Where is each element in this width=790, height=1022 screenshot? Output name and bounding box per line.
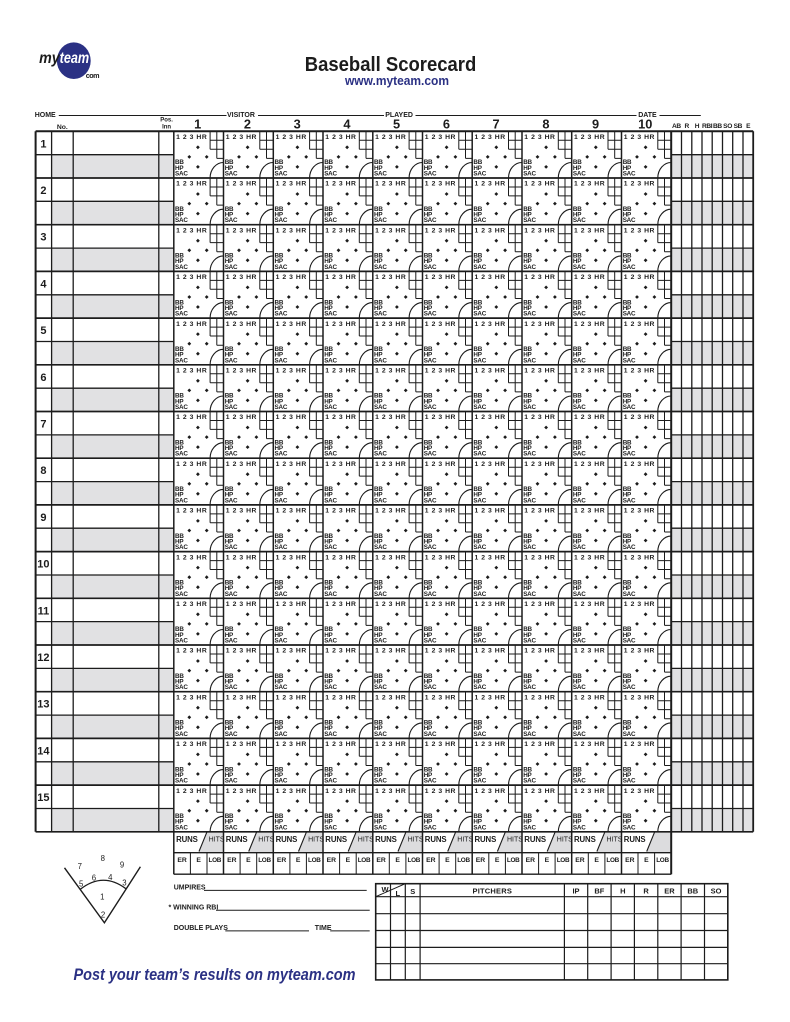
- svg-text:ER: ER: [177, 857, 187, 864]
- svg-text:LOB: LOB: [606, 857, 619, 864]
- svg-text:LOB: LOB: [557, 857, 570, 864]
- svg-text:E: E: [644, 857, 649, 864]
- svg-text:No.: No.: [57, 124, 68, 131]
- svg-text:BB: BB: [713, 123, 722, 130]
- svg-text:E: E: [296, 857, 301, 864]
- svg-text:9: 9: [40, 512, 46, 524]
- svg-text:SO: SO: [711, 887, 722, 896]
- svg-text:R: R: [643, 887, 649, 896]
- svg-text:ER: ER: [664, 887, 675, 896]
- svg-text:3: 3: [40, 232, 46, 244]
- svg-text:3: 3: [122, 879, 126, 888]
- svg-text:BF: BF: [594, 887, 604, 896]
- svg-text:8: 8: [542, 117, 549, 132]
- svg-text:5: 5: [79, 879, 84, 888]
- svg-text:2: 2: [244, 117, 251, 132]
- svg-text:HITS: HITS: [607, 836, 623, 843]
- svg-text:L: L: [396, 889, 401, 898]
- svg-text:1: 1: [100, 893, 104, 902]
- svg-text:RUNS: RUNS: [176, 835, 198, 844]
- svg-text:RUNS: RUNS: [624, 835, 646, 844]
- svg-text:H: H: [695, 123, 700, 130]
- svg-text:7: 7: [493, 117, 500, 132]
- svg-text:RUNS: RUNS: [475, 835, 497, 844]
- svg-text:ER: ER: [426, 857, 436, 864]
- svg-text:2: 2: [40, 185, 46, 197]
- svg-text:LOB: LOB: [308, 857, 321, 864]
- svg-text:R: R: [684, 123, 689, 130]
- svg-text:9: 9: [120, 860, 124, 869]
- svg-text:10: 10: [638, 117, 652, 132]
- svg-text:HITS: HITS: [308, 836, 324, 843]
- svg-text:BB: BB: [687, 887, 698, 896]
- svg-text:RUNS: RUNS: [574, 835, 596, 844]
- svg-text:4: 4: [40, 278, 47, 290]
- svg-text:Inn: Inn: [162, 124, 171, 130]
- svg-text:15: 15: [37, 792, 49, 804]
- svg-text:E: E: [395, 857, 400, 864]
- svg-text:H: H: [620, 887, 625, 896]
- svg-text:E: E: [196, 857, 201, 864]
- svg-text:2: 2: [101, 910, 105, 919]
- svg-text:team: team: [60, 50, 90, 67]
- svg-text:ER: ER: [227, 857, 237, 864]
- svg-text:LOB: LOB: [408, 857, 421, 864]
- svg-text:E: E: [346, 857, 351, 864]
- svg-text:RUNS: RUNS: [375, 835, 397, 844]
- svg-text:3: 3: [294, 117, 301, 132]
- svg-text:S: S: [410, 887, 415, 896]
- svg-text:ER: ER: [625, 857, 635, 864]
- svg-text:13: 13: [37, 699, 49, 711]
- svg-text:com: com: [86, 71, 100, 80]
- svg-text:LOB: LOB: [457, 857, 470, 864]
- svg-text:8: 8: [101, 854, 105, 863]
- svg-text:LOB: LOB: [656, 857, 669, 864]
- svg-text:LOB: LOB: [507, 857, 520, 864]
- svg-text:RUNS: RUNS: [325, 835, 347, 844]
- svg-text:1: 1: [40, 138, 46, 150]
- svg-text:ER: ER: [376, 857, 386, 864]
- svg-text:my: my: [39, 50, 61, 67]
- svg-text:7: 7: [78, 862, 82, 871]
- svg-text:Pos.: Pos.: [160, 118, 173, 124]
- svg-text:ER: ER: [575, 857, 585, 864]
- svg-text:5: 5: [393, 117, 400, 132]
- svg-text:10: 10: [37, 559, 49, 571]
- svg-text:12: 12: [37, 652, 49, 664]
- svg-text:ER: ER: [277, 857, 287, 864]
- svg-text:LOB: LOB: [258, 857, 271, 864]
- svg-text:DOUBLE PLAYS: DOUBLE PLAYS: [174, 925, 229, 932]
- svg-text:14: 14: [37, 745, 50, 757]
- svg-text:www.myteam.com: www.myteam.com: [344, 73, 449, 88]
- svg-text:SB: SB: [734, 123, 743, 130]
- svg-text:5: 5: [40, 325, 46, 337]
- svg-text:E: E: [246, 857, 251, 864]
- svg-text:RUNS: RUNS: [226, 835, 248, 844]
- svg-text:6: 6: [92, 874, 96, 883]
- svg-text:1: 1: [194, 117, 201, 132]
- svg-text:TIME: TIME: [315, 925, 332, 932]
- svg-text:E: E: [445, 857, 450, 864]
- svg-text:* WINNING RBI: * WINNING RBI: [169, 904, 219, 911]
- svg-text:HITS: HITS: [557, 836, 573, 843]
- svg-text:9: 9: [592, 117, 599, 132]
- svg-text:RUNS: RUNS: [276, 835, 298, 844]
- svg-text:7: 7: [40, 419, 46, 431]
- svg-text:11: 11: [38, 605, 50, 617]
- svg-text:PITCHERS: PITCHERS: [473, 887, 513, 896]
- svg-text:RUNS: RUNS: [425, 835, 447, 844]
- svg-text:E: E: [594, 857, 599, 864]
- svg-text:ER: ER: [526, 857, 536, 864]
- svg-text:AB: AB: [672, 123, 681, 130]
- svg-text:LOB: LOB: [209, 857, 222, 864]
- svg-text:RUNS: RUNS: [524, 835, 546, 844]
- svg-text:Post your team’s results on my: Post your team’s results on myteam.com: [74, 965, 356, 984]
- svg-text:W: W: [382, 885, 390, 894]
- svg-text:HOME: HOME: [35, 112, 56, 119]
- svg-text:HITS: HITS: [408, 836, 424, 843]
- svg-text:HITS: HITS: [507, 836, 523, 843]
- svg-text:HITS: HITS: [457, 836, 473, 843]
- svg-text:RBI: RBI: [702, 123, 713, 130]
- svg-text:LOB: LOB: [358, 857, 371, 864]
- svg-text:4: 4: [343, 117, 351, 132]
- svg-text:6: 6: [40, 372, 46, 384]
- svg-text:ER: ER: [327, 857, 337, 864]
- svg-text:4: 4: [108, 873, 113, 882]
- svg-text:ER: ER: [476, 857, 486, 864]
- svg-text:HITS: HITS: [258, 836, 274, 843]
- svg-text:UMPIRES: UMPIRES: [174, 885, 206, 892]
- svg-text:E: E: [495, 857, 500, 864]
- svg-text:HITS: HITS: [358, 836, 374, 843]
- svg-text:SO: SO: [723, 123, 732, 130]
- svg-text:8: 8: [40, 465, 46, 477]
- svg-text:E: E: [545, 857, 550, 864]
- svg-text:6: 6: [443, 117, 450, 132]
- svg-text:IP: IP: [572, 887, 579, 896]
- svg-text:HITS: HITS: [209, 836, 225, 843]
